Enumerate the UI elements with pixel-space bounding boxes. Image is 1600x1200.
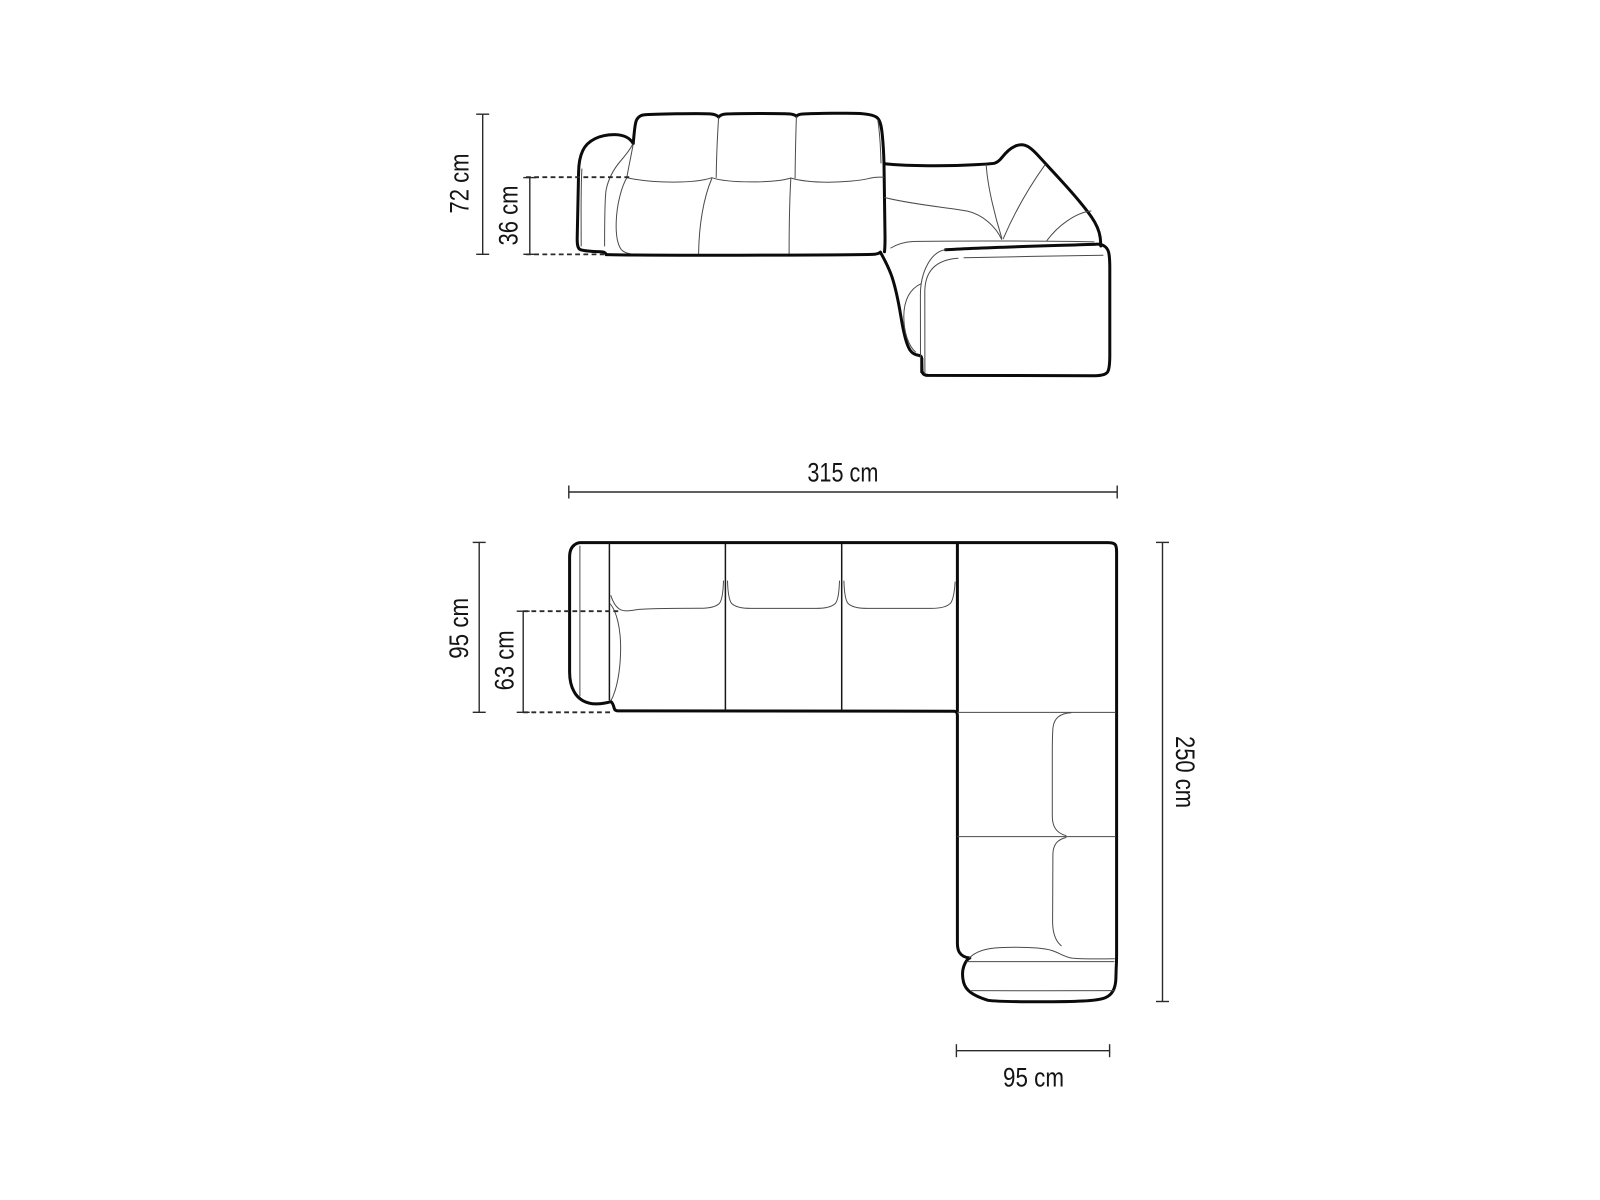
svg-text:315 cm: 315 cm xyxy=(807,457,878,487)
svg-text:36 cm: 36 cm xyxy=(494,186,524,246)
svg-text:95 cm: 95 cm xyxy=(444,598,474,659)
svg-text:250 cm: 250 cm xyxy=(1170,736,1200,808)
svg-text:63 cm: 63 cm xyxy=(490,630,520,690)
svg-text:72 cm: 72 cm xyxy=(445,154,475,214)
svg-text:95 cm: 95 cm xyxy=(1003,1062,1064,1092)
